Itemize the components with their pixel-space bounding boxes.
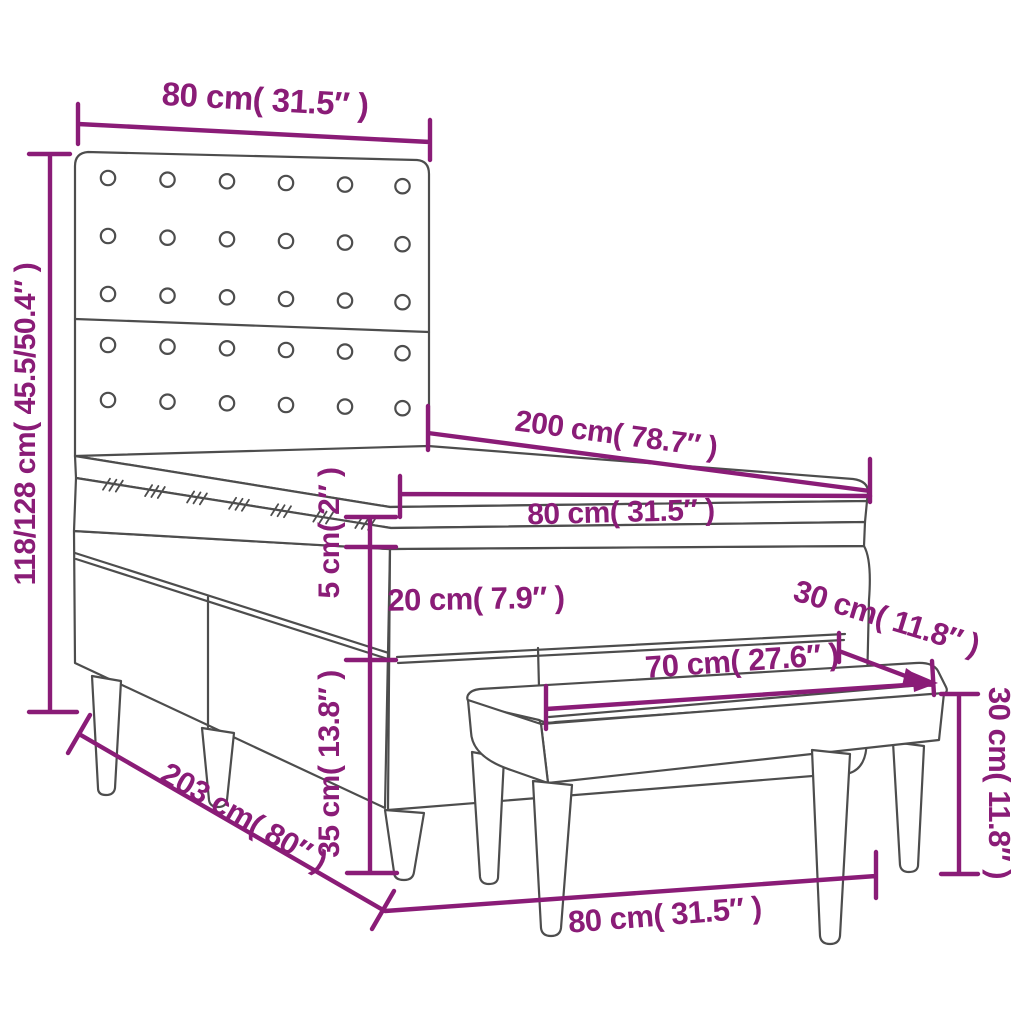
dim-topper-height-label: 5 cm( 2″ ) bbox=[313, 467, 346, 598]
headboard-button bbox=[395, 179, 409, 193]
bench-back-left-leg bbox=[472, 752, 504, 884]
headboard-button bbox=[220, 396, 234, 410]
headboard-button bbox=[160, 395, 174, 409]
headboard-button bbox=[160, 173, 174, 187]
dim-headboard-width-label: 80 cm( 31.5″ ) bbox=[161, 75, 370, 123]
headboard-button bbox=[160, 289, 174, 303]
bed-dimension-drawing: 80 cm( 31.5″ ) 118/128 cm( 45.5/50.4″ ) … bbox=[0, 0, 1024, 1024]
dim-mattress-width-label: 80 cm( 31.5″ ) bbox=[527, 493, 715, 531]
headboard-button bbox=[220, 341, 234, 355]
headboard-button bbox=[101, 393, 115, 407]
headboard-button bbox=[160, 340, 174, 354]
dim-bed-width: 80 cm( 31.5″ ) bbox=[385, 852, 876, 940]
bed-leg bbox=[385, 810, 424, 880]
headboard-button bbox=[220, 174, 234, 188]
headboard-button bbox=[279, 343, 293, 357]
headboard-button bbox=[338, 344, 352, 358]
headboard-button bbox=[101, 338, 115, 352]
headboard-button bbox=[338, 235, 352, 249]
dimension-diagram: 80 cm( 31.5″ ) 118/128 cm( 45.5/50.4″ ) … bbox=[0, 0, 1024, 1024]
bench-front-left-leg bbox=[533, 781, 572, 936]
bench-front-right-leg bbox=[812, 750, 850, 944]
headboard-button bbox=[338, 177, 352, 191]
headboard-button bbox=[395, 346, 409, 360]
headboard-button bbox=[101, 287, 115, 301]
headboard-button bbox=[279, 234, 293, 248]
headboard-button bbox=[101, 171, 115, 185]
headboard-button bbox=[101, 229, 115, 243]
headboard-button bbox=[220, 290, 234, 304]
bed-leg bbox=[92, 676, 121, 795]
headboard-button bbox=[279, 398, 293, 412]
dim-boxspring-height-label: 20 cm( 7.9″ ) bbox=[387, 580, 565, 618]
dim-bench-height: 30 cm( 11.8″ ) bbox=[941, 687, 1017, 879]
dim-headboard-height-label: 118/128 cm( 45.5/50.4″ ) bbox=[9, 263, 42, 586]
dim-base-height-label: 35 cm( 13.8″ ) bbox=[313, 670, 346, 857]
headboard-button bbox=[279, 176, 293, 190]
headboard-button bbox=[160, 231, 174, 245]
dim-bench-height-label: 30 cm( 11.8″ ) bbox=[982, 687, 1017, 879]
headboard-button bbox=[395, 237, 409, 251]
dim-headboard-width: 80 cm( 31.5″ ) bbox=[78, 75, 430, 160]
headboard-button bbox=[395, 295, 409, 309]
headboard-button bbox=[279, 292, 293, 306]
headboard-button bbox=[395, 401, 409, 415]
headboard-button bbox=[338, 399, 352, 413]
headboard-button bbox=[338, 293, 352, 307]
dim-headboard-height: 118/128 cm( 45.5/50.4″ ) bbox=[9, 154, 77, 712]
headboard-button bbox=[220, 232, 234, 246]
bench-back-right-leg bbox=[893, 742, 924, 872]
dim-bed-length-label: 203 cm( 80″ ) bbox=[155, 755, 333, 878]
